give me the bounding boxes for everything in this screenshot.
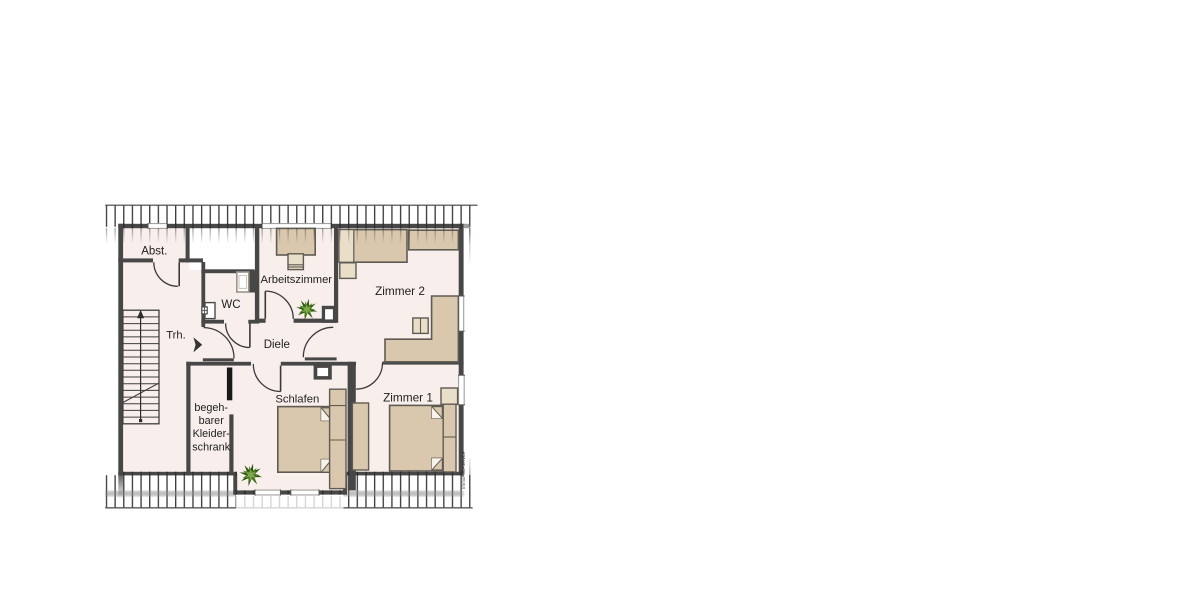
svg-text:begeh-: begeh-	[194, 402, 228, 414]
svg-text:Arbeitszimmer: Arbeitszimmer	[261, 274, 333, 286]
svg-text:Zimmer 2: Zimmer 2	[375, 284, 425, 298]
svg-text:barer: barer	[199, 415, 225, 427]
svg-text:Schlafen: Schlafen	[275, 394, 319, 406]
svg-text:Zimmer 1: Zimmer 1	[383, 390, 433, 404]
svg-text:Kleider-: Kleider-	[193, 428, 231, 440]
svg-text:ImmoFoto-Service: ImmoFoto-Service	[461, 451, 466, 489]
svg-text:WC: WC	[221, 299, 240, 311]
svg-text:Diele: Diele	[264, 339, 290, 351]
svg-text:Trh.: Trh.	[166, 330, 185, 342]
svg-text:Abst.: Abst.	[141, 246, 167, 258]
svg-text:schrank: schrank	[192, 442, 230, 454]
